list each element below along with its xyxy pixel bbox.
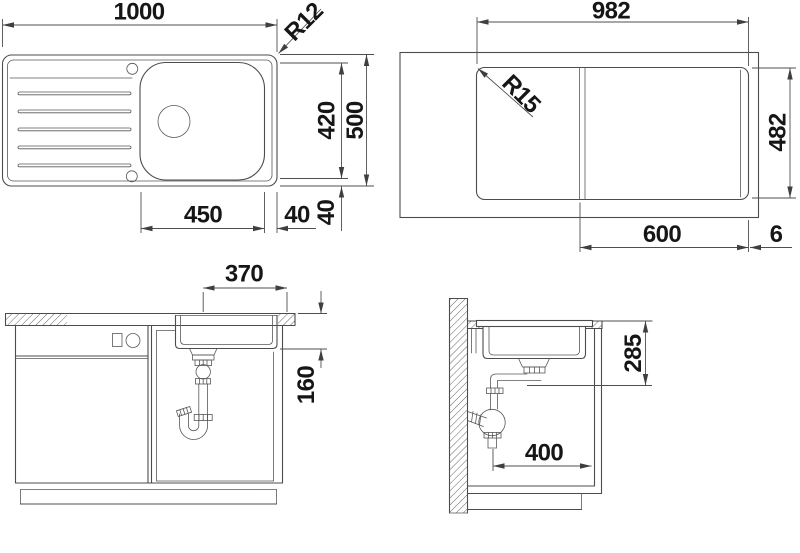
dim-label-6: 6 [770, 221, 783, 248]
dim-label-370: 370 [225, 261, 263, 288]
bowl-section-side [472, 327, 586, 359]
dim-label-r15: R15 [497, 70, 546, 119]
bowl-outline [140, 63, 265, 181]
dim-label-400: 400 [525, 440, 563, 467]
dim-label-160: 160 [293, 366, 320, 404]
sink-cabinet [16, 326, 283, 505]
dim-overall-width: 1000 [3, 0, 278, 52]
siphon-side [468, 359, 550, 449]
outlet-pipe-bottom [498, 381, 542, 389]
dim-label-420: 420 [314, 101, 341, 139]
dim-label-40-h: 40 [284, 202, 310, 229]
drain-flange-side [519, 359, 550, 368]
drain-flange [190, 349, 218, 356]
dim-trap-clearance-400: 400 [493, 440, 592, 472]
trap-bulb [479, 409, 505, 435]
dim-label-450: 450 [184, 202, 222, 229]
tap-hole-bottom [126, 171, 137, 182]
dishwasher-control-knob [126, 334, 140, 348]
sink-rim-side [477, 321, 593, 327]
view-front-section: 370 160 [6, 261, 328, 505]
dim-arrow [318, 350, 323, 361]
ball-joint [196, 365, 210, 379]
cabinet-side [468, 329, 602, 510]
trap-cleanout-cap [176, 406, 191, 416]
outlet-pipe-top [491, 374, 528, 388]
dishwasher-unit [16, 326, 152, 484]
view-sink-plan: 1000 R12 420 500 450 [3, 0, 375, 233]
dishwasher-control-button [113, 334, 123, 347]
dim-cutout-width-982: 982 [477, 0, 749, 66]
dim-arrow [318, 303, 323, 314]
siphon-front [176, 349, 217, 440]
dim-label-600: 600 [643, 221, 681, 248]
bowl-section-front [176, 316, 278, 349]
dim-arrow [339, 187, 344, 198]
dim-label-1000: 1000 [114, 0, 165, 26]
wall-section [450, 299, 468, 514]
dim-label-500: 500 [342, 101, 369, 139]
view-side-section: 285 400 [450, 299, 653, 514]
dim-overall-depth-500: 500 [342, 55, 369, 187]
dim-bowl-width-450: 450 [141, 192, 277, 233]
view-cutout-plan: 982 R15 482 600 6 [400, 0, 796, 252]
tap-hole-top [127, 63, 138, 74]
drain-hole [158, 106, 190, 138]
dim-label-982: 982 [592, 0, 630, 25]
dim-corner-radius-r15: R15 [476, 66, 545, 118]
technical-drawing-page: 1000 R12 420 500 450 [0, 0, 800, 553]
dim-edge-offset-6: 6 [750, 221, 792, 250]
sink-dimension-drawing: 1000 R12 420 500 450 [0, 0, 800, 553]
dim-corner-radius-r12: R12 [277, 0, 329, 55]
dim-label-285: 285 [620, 334, 647, 372]
dim-bowl-back-gap-40: 40 [313, 186, 344, 231]
dim-label-40-v: 40 [313, 200, 340, 226]
dim-drain-offset-370: 370 [203, 261, 287, 313]
counter-hatch-left [6, 314, 67, 326]
counter-hatch-right [278, 314, 295, 326]
dim-outlet-height-285: 285 [527, 321, 652, 386]
dim-label-r12: R12 [280, 0, 329, 46]
drainboard-ribs [18, 92, 131, 167]
dim-bowl-side-gap-40: 40 [277, 202, 316, 232]
dim-arrow [750, 245, 761, 250]
dim-bowl-zone-600: 600 [580, 203, 749, 253]
dim-label-482: 482 [765, 113, 792, 151]
